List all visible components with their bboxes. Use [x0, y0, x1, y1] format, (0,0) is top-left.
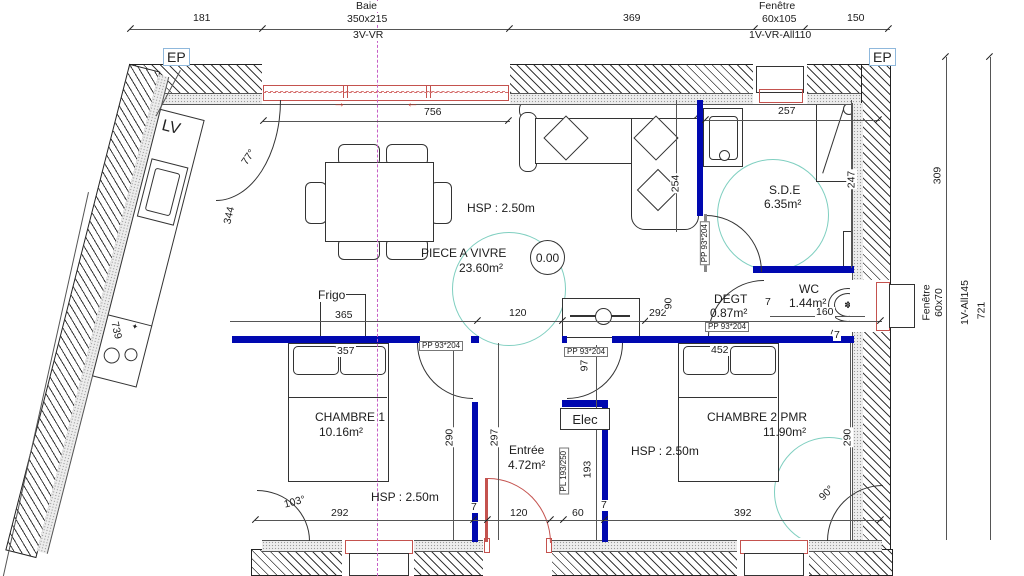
door-arc-chambre1	[417, 343, 473, 399]
window-ch1-box	[349, 553, 409, 576]
dim-292-bottom: 292	[330, 508, 350, 519]
entree-name: Entrée	[508, 444, 545, 457]
pillow	[293, 346, 339, 375]
degt-dim-7: 7	[764, 297, 772, 308]
dining-table	[325, 162, 434, 242]
level-value: 0.00	[536, 251, 559, 265]
bay-size: 350x215	[346, 14, 388, 25]
ch1-dim-7: 7	[470, 502, 478, 513]
wall-main-1	[232, 336, 420, 343]
ch2-area: 11.90m²	[762, 426, 807, 439]
elec-label-box: Elec	[560, 408, 610, 430]
ch1-dim-290: 290	[444, 428, 455, 448]
pillow	[730, 346, 776, 375]
ch1-hsp: HSP : 2.50m	[370, 491, 440, 504]
dim-line-bottom	[255, 520, 882, 521]
ch2-dim-290: 290	[842, 428, 853, 448]
wall-main-4	[612, 336, 854, 343]
dim-150: 150	[846, 13, 866, 24]
window-top-size: 60x105	[761, 14, 797, 25]
slide-arrow-left-icon: ←	[406, 95, 419, 110]
elec-label: Elec	[572, 412, 597, 427]
living-area: 23.60m²	[458, 262, 504, 275]
window-top-frame	[759, 89, 803, 103]
degt-door-tag: PP 93*204	[705, 322, 749, 332]
closet-tag: PL 193/250	[559, 448, 569, 495]
dim-line-elec	[596, 345, 597, 540]
wall-main-2	[471, 336, 479, 343]
dim-365: 365	[334, 310, 354, 321]
dim-357: 357	[336, 346, 356, 357]
dim-247: 247	[846, 170, 857, 190]
sde-name: S.D.E	[768, 184, 801, 197]
ch2-dim-7: 7	[833, 330, 841, 341]
wall-sde-south	[753, 266, 854, 273]
dim-line-756	[263, 121, 510, 122]
frigo-label: Frigo	[317, 289, 346, 302]
bay-axis-line	[263, 92, 508, 93]
slide-arrow-right-icon: →	[333, 95, 346, 110]
window-ch2-box	[744, 553, 804, 576]
dim-369: 369	[622, 13, 642, 24]
console-knob	[595, 308, 612, 325]
dim-297: 297	[489, 428, 500, 448]
window-right-box	[889, 284, 915, 328]
bay-title: Baie	[355, 1, 378, 12]
ch1-name: CHAMBRE 1	[314, 411, 386, 424]
sde-door-tag: PP 93*204	[700, 221, 710, 265]
degt-name: DEGT	[713, 293, 748, 306]
bed-fold-line	[678, 397, 777, 398]
dim-344: 344	[222, 205, 237, 227]
dim-120-bottom: 120	[509, 508, 529, 519]
ep-marker-right: EP	[869, 48, 896, 66]
dim-193: 193	[582, 460, 593, 480]
dim-line-right-outer	[990, 57, 991, 540]
dim-160: 160	[815, 307, 835, 318]
dim-60: 60	[571, 508, 585, 519]
window-top-title: Fenêtre	[758, 1, 796, 12]
ch1-door-tag: PP 93*204	[419, 341, 463, 351]
ch2-hsp: HSP : 2.50m	[630, 445, 700, 458]
window-ch2-frame	[740, 540, 808, 554]
window-right-size: 60x70	[934, 287, 945, 318]
dim-120-living: 120	[508, 308, 528, 319]
wall-main-3	[562, 336, 567, 343]
window-top-type: 1V-VR-All110	[748, 30, 812, 41]
elec-dim-7: 7	[600, 500, 608, 511]
wall-sde-west	[697, 100, 703, 216]
bay-window	[263, 85, 509, 101]
dim-721: 721	[976, 301, 987, 321]
sde-area: 6.35m²	[763, 198, 802, 211]
bay-type: 3V-VR	[352, 30, 384, 41]
dim-254: 254	[670, 174, 681, 194]
dim-309: 309	[932, 166, 943, 186]
window-ch1-frame	[345, 540, 413, 554]
entree-area: 4.72m²	[507, 459, 546, 472]
window-right-title: Fenêtre	[922, 283, 933, 321]
washbasin-drain	[719, 150, 730, 161]
dim-756: 756	[423, 107, 443, 118]
entry-door-leaf	[485, 478, 488, 542]
wc-name: WC	[798, 283, 820, 296]
dim-line-right-inner	[946, 57, 947, 540]
degt-area: 0.87m²	[709, 307, 748, 320]
ch2-door-tag: PP 93*204	[564, 347, 608, 357]
dim-line-257	[705, 120, 880, 121]
chair	[305, 182, 327, 224]
dim-392: 392	[733, 508, 753, 519]
dim-line-mid	[230, 321, 882, 322]
ch2-name: CHAMBRE 2 PMR	[706, 411, 808, 424]
dim-181: 181	[192, 13, 212, 24]
dim-line-254	[676, 100, 677, 232]
dim-90-living: 90	[663, 297, 674, 311]
dim-97: 97	[579, 359, 590, 373]
ep-marker-left: EP	[163, 48, 190, 66]
level-marker: 0.00	[530, 240, 565, 275]
living-hsp: HSP : 2.50m	[466, 202, 536, 215]
dim-452: 452	[710, 345, 730, 356]
window-right-type: 1V-All145	[960, 279, 971, 326]
ch1-area: 10.16m²	[318, 426, 364, 439]
floor-plan-sheet: L.L ✽ LV ✦ ✦ → ←	[0, 0, 1024, 576]
living-name: PIECE A VIVRE	[420, 247, 507, 260]
bed-fold-line	[288, 397, 387, 398]
dim-257: 257	[777, 106, 797, 117]
